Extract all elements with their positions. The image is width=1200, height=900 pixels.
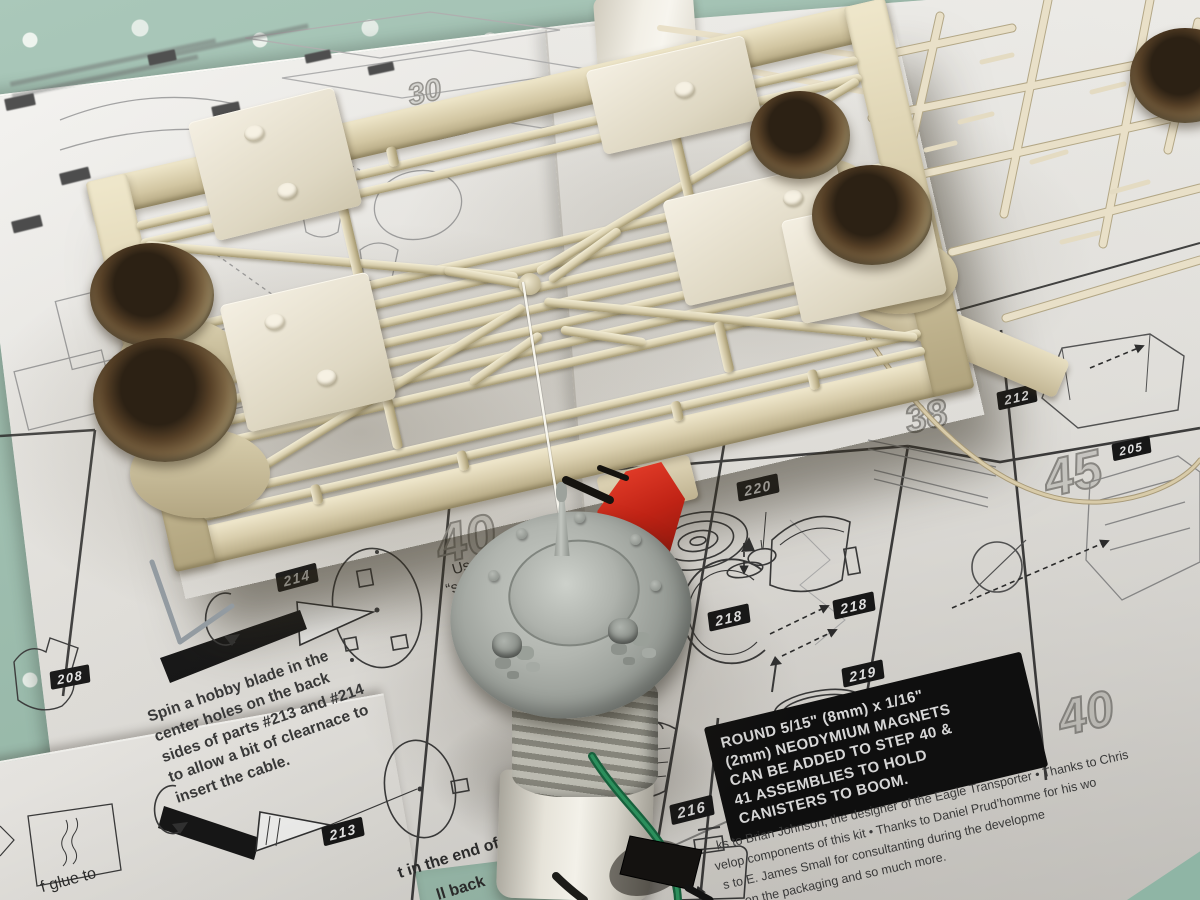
photo-scene: 200 208 213 214 215 216 216 217 218 218 … xyxy=(0,0,1200,900)
black-wire-tail xyxy=(688,888,710,900)
black-wire xyxy=(566,480,610,500)
black-wire-base xyxy=(556,876,584,900)
foreground-wires-layer xyxy=(0,0,1200,900)
black-wire xyxy=(600,468,626,478)
